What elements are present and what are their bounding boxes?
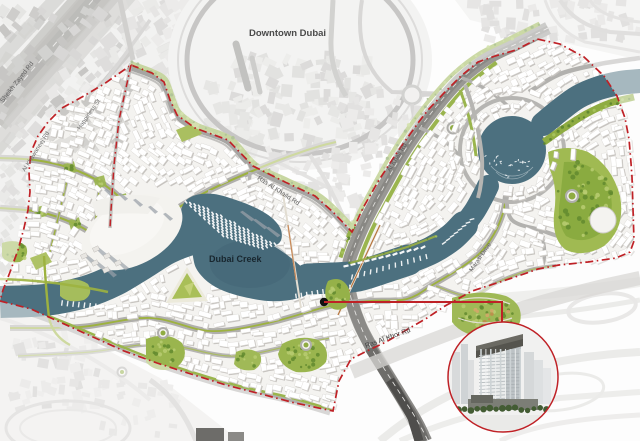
svg-text:Downtown Dubai: Downtown Dubai <box>249 28 326 39</box>
svg-text:Dubai Creek: Dubai Creek <box>209 254 263 264</box>
